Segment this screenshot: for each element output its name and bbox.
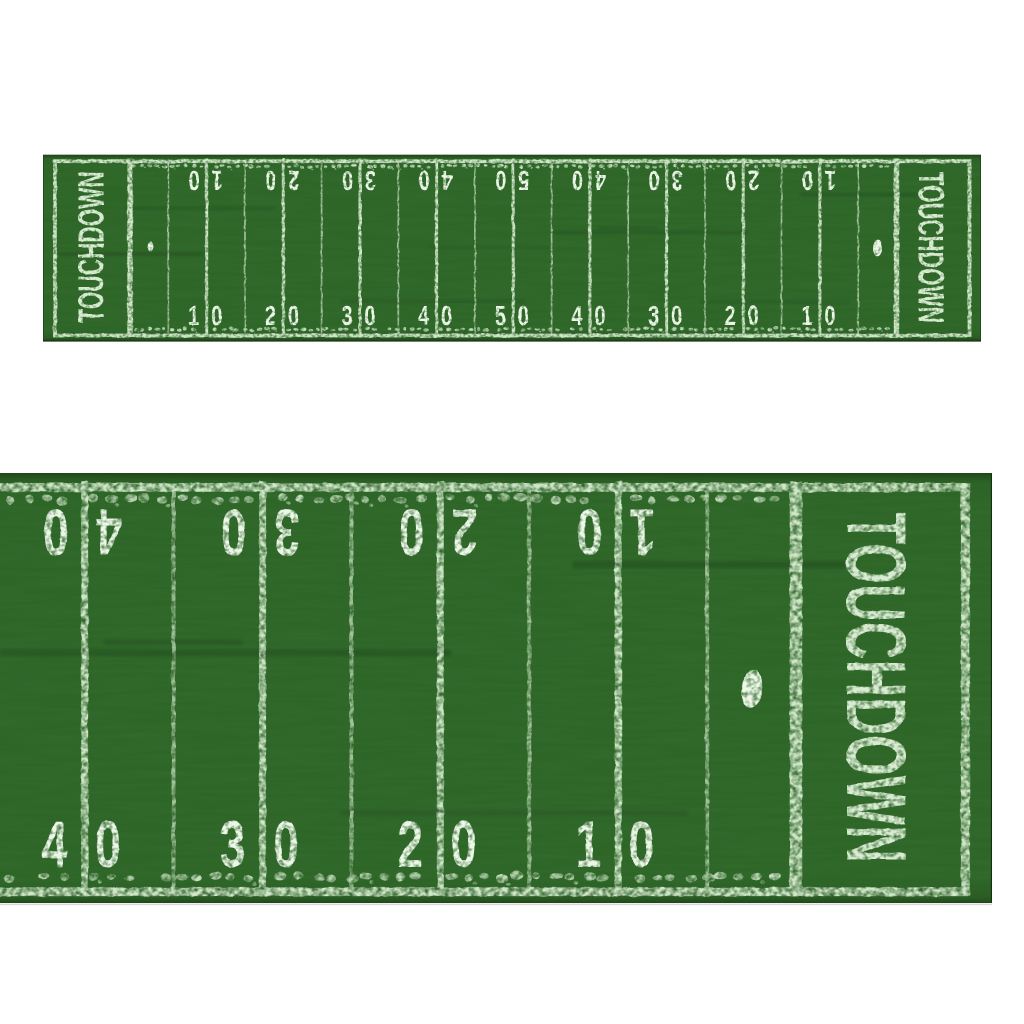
svg-text:4: 4 bbox=[96, 495, 122, 568]
svg-text:3: 3 bbox=[648, 301, 659, 332]
svg-text:3: 3 bbox=[672, 164, 683, 195]
svg-text:0: 0 bbox=[824, 301, 835, 332]
svg-text:0: 0 bbox=[518, 301, 529, 332]
svg-text:3: 3 bbox=[341, 301, 352, 332]
svg-text:TOUCHDOWN: TOUCHDOWN bbox=[70, 171, 112, 322]
svg-text:2: 2 bbox=[288, 164, 299, 195]
svg-text:0: 0 bbox=[576, 495, 602, 568]
svg-text:2: 2 bbox=[748, 164, 759, 195]
svg-text:0: 0 bbox=[265, 164, 276, 195]
svg-text:0: 0 bbox=[221, 495, 247, 568]
svg-text:TOUCHDOWN: TOUCHDOWN bbox=[910, 172, 952, 323]
svg-text:2: 2 bbox=[452, 495, 478, 568]
svg-text:2: 2 bbox=[397, 809, 423, 882]
svg-text:1: 1 bbox=[801, 301, 812, 332]
svg-text:3: 3 bbox=[274, 495, 300, 568]
svg-text:0: 0 bbox=[419, 164, 430, 195]
svg-text:0: 0 bbox=[802, 164, 813, 195]
svg-text:0: 0 bbox=[572, 164, 583, 195]
svg-text:0: 0 bbox=[748, 301, 759, 332]
svg-text:TOUCHDOWN: TOUCHDOWN bbox=[828, 512, 922, 863]
svg-text:1: 1 bbox=[630, 495, 656, 568]
svg-text:0: 0 bbox=[671, 301, 682, 332]
svg-text:1: 1 bbox=[188, 301, 199, 332]
svg-text:0: 0 bbox=[288, 301, 299, 332]
svg-text:0: 0 bbox=[629, 809, 655, 882]
svg-text:0: 0 bbox=[451, 809, 477, 882]
svg-text:0: 0 bbox=[189, 164, 200, 195]
svg-text:0: 0 bbox=[594, 301, 605, 332]
svg-text:0: 0 bbox=[273, 809, 299, 882]
svg-text:0: 0 bbox=[211, 301, 222, 332]
svg-text:4: 4 bbox=[418, 301, 429, 332]
svg-text:4: 4 bbox=[595, 164, 606, 195]
svg-text:0: 0 bbox=[725, 164, 736, 195]
svg-text:4: 4 bbox=[571, 301, 582, 332]
svg-text:0: 0 bbox=[495, 164, 506, 195]
svg-text:5: 5 bbox=[518, 164, 529, 195]
svg-text:1: 1 bbox=[575, 809, 601, 882]
svg-text:0: 0 bbox=[43, 495, 69, 568]
svg-text:4: 4 bbox=[42, 809, 68, 882]
svg-text:0: 0 bbox=[95, 809, 121, 882]
svg-text:5: 5 bbox=[495, 301, 506, 332]
svg-text:1: 1 bbox=[212, 164, 223, 195]
svg-text:2: 2 bbox=[265, 301, 276, 332]
svg-text:0: 0 bbox=[364, 301, 375, 332]
svg-text:0: 0 bbox=[398, 495, 424, 568]
svg-text:3: 3 bbox=[365, 164, 376, 195]
svg-text:0: 0 bbox=[342, 164, 353, 195]
svg-text:4: 4 bbox=[441, 164, 452, 195]
svg-text:1: 1 bbox=[825, 164, 836, 195]
svg-text:3: 3 bbox=[220, 809, 246, 882]
svg-text:2: 2 bbox=[725, 301, 736, 332]
svg-text:0: 0 bbox=[649, 164, 660, 195]
svg-text:0: 0 bbox=[441, 301, 452, 332]
